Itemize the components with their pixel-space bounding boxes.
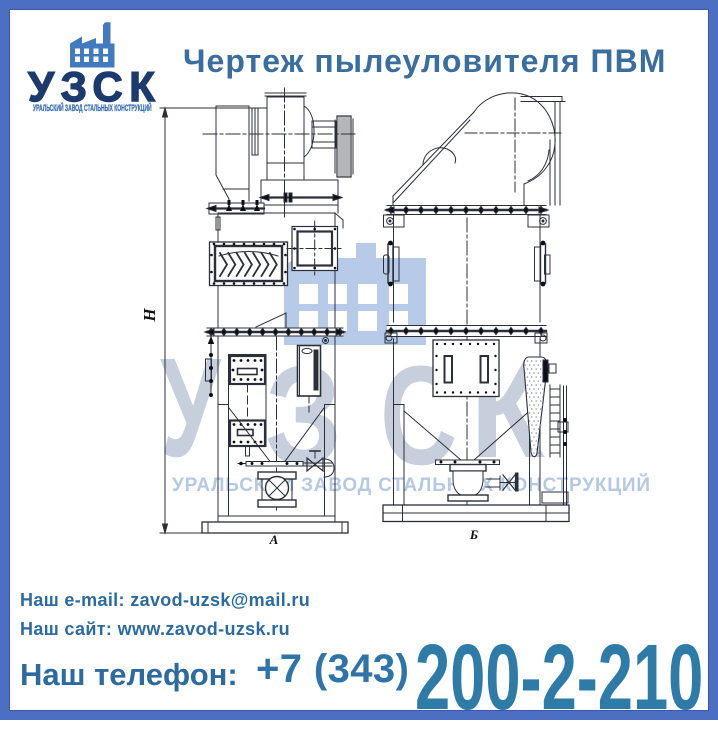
svg-text:У: У — [160, 328, 222, 486]
svg-text:А: А — [269, 532, 279, 547]
svg-text:УРАЛЬСКИЙ ЗАВОД СТАЛЬНЫХ КОНСТ: УРАЛЬСКИЙ ЗАВОД СТАЛЬНЫХ КОНСТРУКЦИЙ — [172, 474, 650, 496]
svg-text:Н: Н — [140, 308, 159, 323]
svg-text:Б: Б — [469, 527, 478, 542]
